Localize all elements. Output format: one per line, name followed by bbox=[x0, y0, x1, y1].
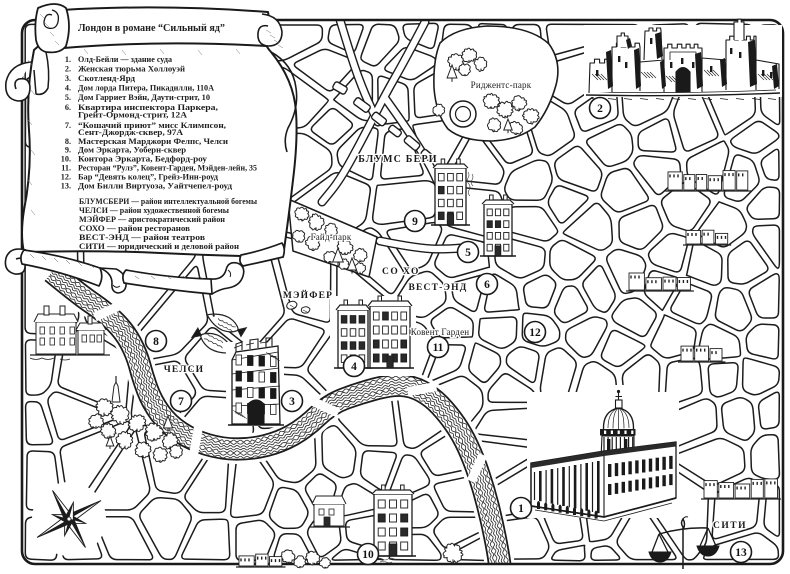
svg-text:8: 8 bbox=[153, 336, 159, 348]
svg-text:9.: 9. bbox=[65, 146, 71, 155]
svg-text:Дом Эркарта, Уоберн-сквер: Дом Эркарта, Уоберн-сквер bbox=[78, 146, 186, 155]
svg-text:БЛУМСБЕРИ — район интеллектуал: БЛУМСБЕРИ — район интеллектуальной богем… bbox=[79, 197, 258, 206]
svg-text:Дом лорда Питера, Пикадилли, 1: Дом лорда Питера, Пикадилли, 110А bbox=[78, 84, 214, 93]
svg-text:Олд-Бейли — здание суда: Олд-Бейли — здание суда bbox=[78, 55, 172, 64]
svg-text:ВЕСТ-ЭНД: ВЕСТ-ЭНД bbox=[408, 283, 467, 293]
svg-text:7.: 7. bbox=[65, 121, 71, 130]
svg-text:1.: 1. bbox=[65, 55, 71, 64]
svg-text:ЧЕЛСИ — район художественной б: ЧЕЛСИ — район художественной богемы bbox=[79, 206, 230, 215]
svg-text:13.: 13. bbox=[61, 182, 71, 191]
svg-text:Контора Эркарта, Бедфорд-роу: Контора Эркарта, Бедфорд-роу bbox=[78, 155, 208, 164]
svg-text:9: 9 bbox=[412, 216, 418, 228]
svg-text:4: 4 bbox=[351, 361, 357, 373]
svg-text:Риджентс-парк: Риджентс-парк bbox=[471, 80, 532, 90]
svg-text:СИТИ: СИТИ bbox=[713, 521, 747, 531]
svg-text:Сент-Джордж-сквер, 97А: Сент-Джордж-сквер, 97А bbox=[78, 128, 183, 137]
svg-text:10: 10 bbox=[362, 549, 374, 561]
svg-text:Гайд-парк: Гайд-парк bbox=[311, 232, 352, 242]
svg-text:Женская тюрьма Холлоуэй: Женская тюрьма Холлоуэй bbox=[78, 65, 185, 74]
svg-text:Дом Гарриет Вэйн, Даути-стрит,: Дом Гарриет Вэйн, Даути-стрит, 10 bbox=[78, 93, 210, 102]
svg-text:БЛУМС БЕРИ: БЛУМС БЕРИ bbox=[358, 154, 437, 165]
svg-text:Скотленд-Ярд: Скотленд-Ярд bbox=[78, 74, 136, 83]
svg-text:МЭЙФЕР: МЭЙФЕР bbox=[283, 289, 333, 301]
svg-text:3.: 3. bbox=[65, 74, 71, 83]
svg-text:7: 7 bbox=[178, 396, 184, 408]
svg-text:Ресторан “Рулз”, Ковент-Гарден: Ресторан “Рулз”, Ковент-Гарден, Мэйден-л… bbox=[78, 164, 257, 173]
svg-text:5: 5 bbox=[465, 247, 471, 259]
svg-text:13: 13 bbox=[735, 547, 747, 559]
svg-text:3: 3 bbox=[289, 396, 295, 408]
svg-text:СО ХО: СО ХО bbox=[382, 267, 420, 277]
svg-text:6: 6 bbox=[484, 279, 490, 291]
svg-text:11: 11 bbox=[433, 342, 444, 354]
svg-text:4.: 4. bbox=[65, 84, 71, 93]
svg-text:1: 1 bbox=[518, 503, 524, 515]
svg-text:10.: 10. bbox=[61, 155, 71, 164]
svg-text:СИТИ — юридический и деловой р: СИТИ — юридический и деловой район bbox=[79, 242, 239, 251]
svg-text:2.: 2. bbox=[65, 65, 71, 74]
svg-text:ЧЕЛСИ: ЧЕЛСИ bbox=[164, 365, 205, 375]
svg-text:Грейт-Ормонд-стрит, 12А: Грейт-Ормонд-стрит, 12А bbox=[78, 111, 187, 120]
svg-text:ВЕСТ-ЭНД — район театров: ВЕСТ-ЭНД — район театров bbox=[79, 233, 206, 242]
svg-text:11.: 11. bbox=[61, 164, 71, 173]
svg-text:Ковент Гарден: Ковент Гарден bbox=[411, 327, 470, 337]
svg-text:6.: 6. bbox=[65, 103, 71, 112]
svg-text:2: 2 bbox=[597, 103, 603, 115]
svg-text:Бар “Девять колец”, Грейз-Инн-: Бар “Девять колец”, Грейз-Инн-роуд bbox=[78, 173, 219, 182]
svg-text:Лондон в романе “Сильный яд”: Лондон в романе “Сильный яд” bbox=[78, 23, 225, 34]
svg-text:Дом Билли Виртуоза, Уайтчепел-: Дом Билли Виртуоза, Уайтчепел-роуд bbox=[78, 182, 233, 191]
svg-text:МЭЙФЕР — аристократический рай: МЭЙФЕР — аристократический район bbox=[79, 215, 225, 224]
svg-text:12.: 12. bbox=[61, 173, 71, 182]
svg-text:СОХО — район ресторанов: СОХО — район ресторанов bbox=[79, 224, 191, 233]
svg-text:5.: 5. bbox=[65, 93, 71, 102]
svg-text:12: 12 bbox=[529, 327, 541, 339]
